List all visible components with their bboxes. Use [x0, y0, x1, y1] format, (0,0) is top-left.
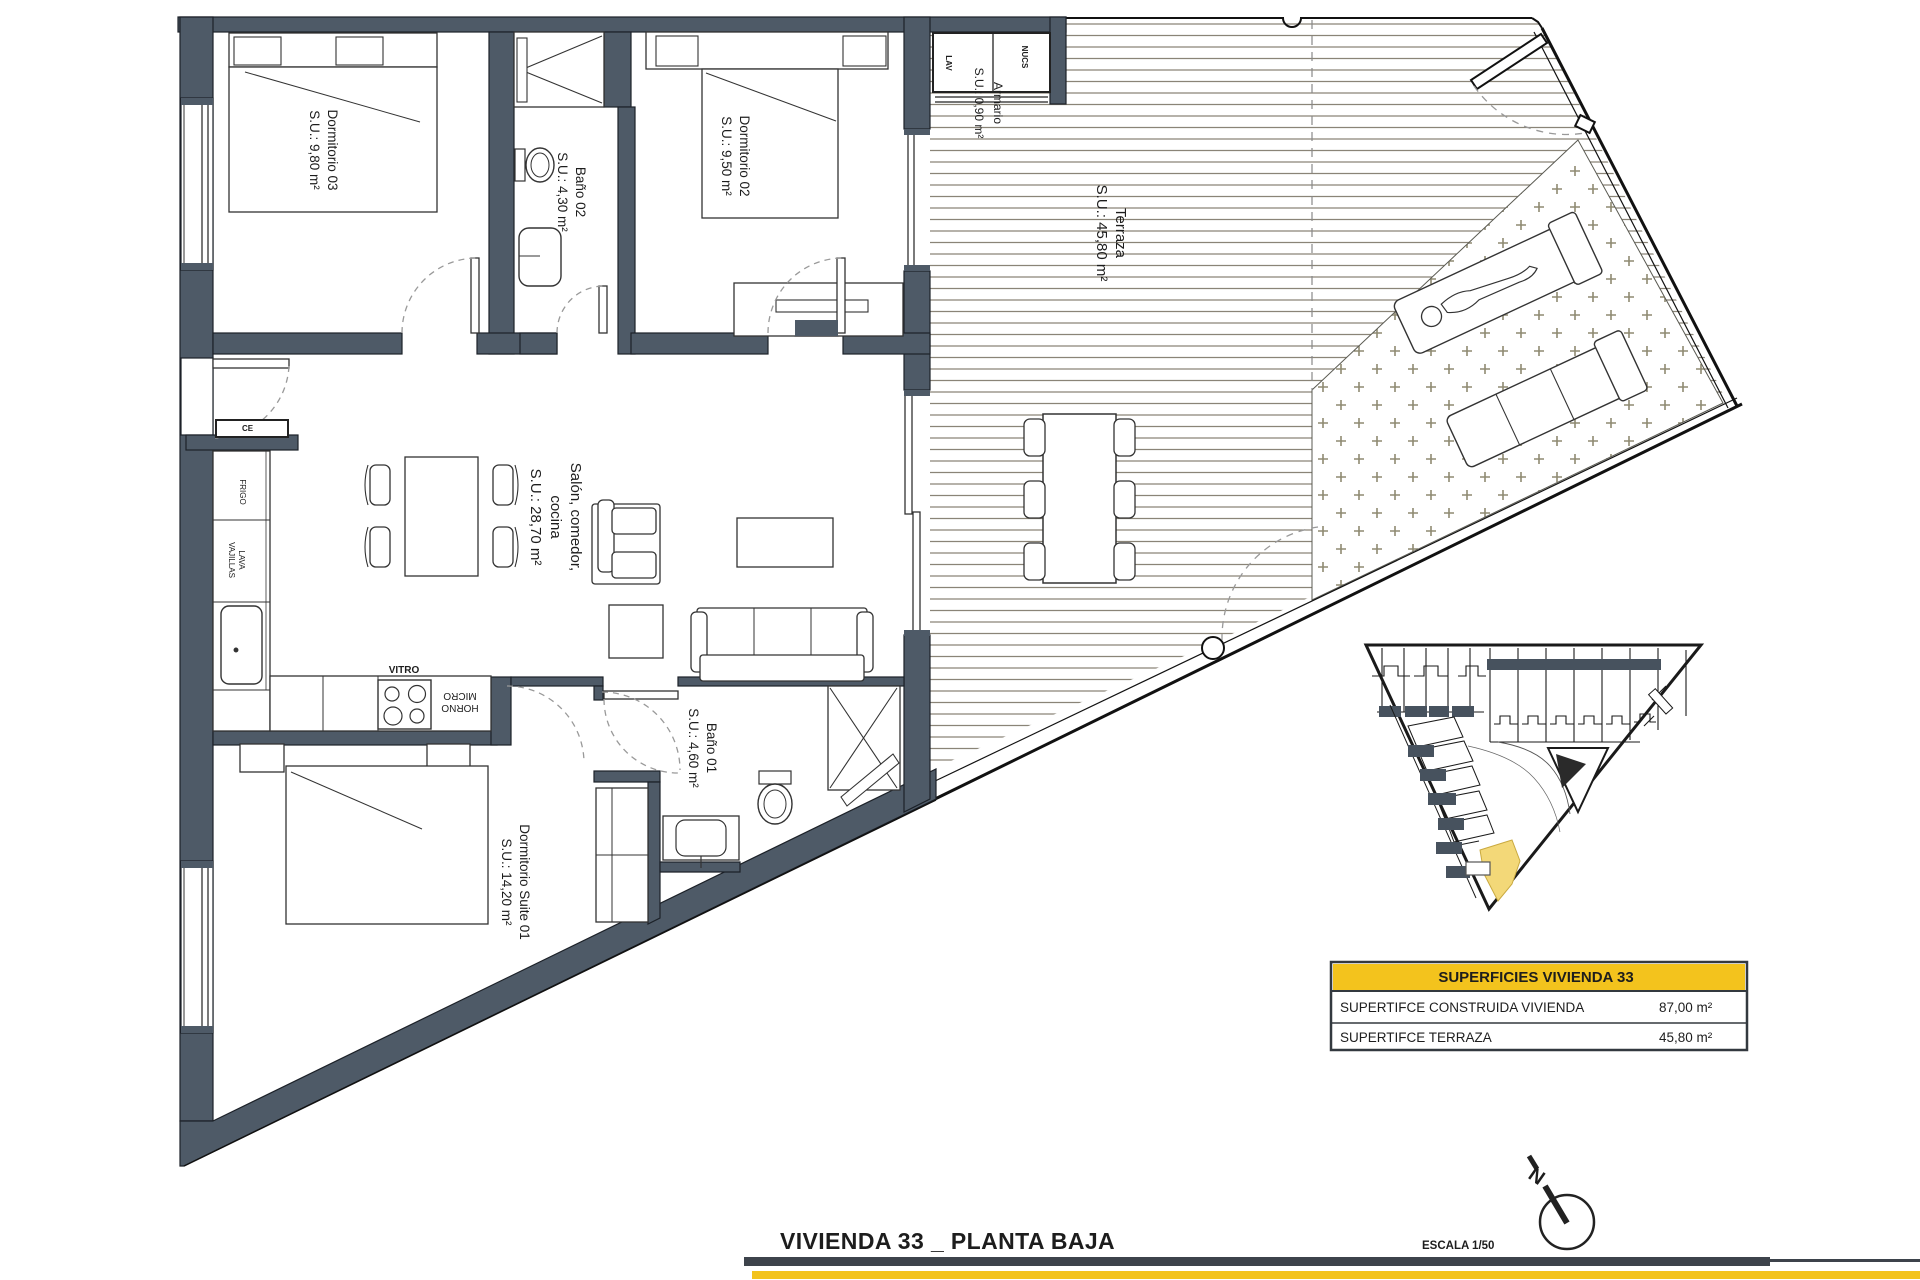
svg-text:VITRO: VITRO: [389, 665, 420, 676]
svg-text:45,80 m²: 45,80 m²: [1659, 1030, 1713, 1045]
svg-text:CE: CE: [242, 424, 254, 433]
svg-text:SUPERTIFCE TERRAZA: SUPERTIFCE TERRAZA: [1340, 1030, 1492, 1045]
svg-text:HORNOMICRO: HORNOMICRO: [441, 690, 478, 713]
svg-text:87,00 m²: 87,00 m²: [1659, 1000, 1713, 1015]
svg-text:NUCS: NUCS: [1020, 46, 1029, 69]
svg-text:SUPERFICIES VIVIENDA 33: SUPERFICIES VIVIENDA 33: [1438, 969, 1633, 986]
svg-text:ESCALA 1/50: ESCALA 1/50: [1422, 1240, 1494, 1252]
svg-text:VIVIENDA 33 _ PLANTA BAJA: VIVIENDA 33 _ PLANTA BAJA: [780, 1228, 1115, 1254]
svg-text:SUPERTIFCE CONSTRUIDA VIVIENDA: SUPERTIFCE CONSTRUIDA VIVIENDA: [1340, 1000, 1584, 1015]
svg-text:FRIGO: FRIGO: [238, 479, 247, 504]
svg-text:LAV: LAV: [944, 55, 953, 71]
